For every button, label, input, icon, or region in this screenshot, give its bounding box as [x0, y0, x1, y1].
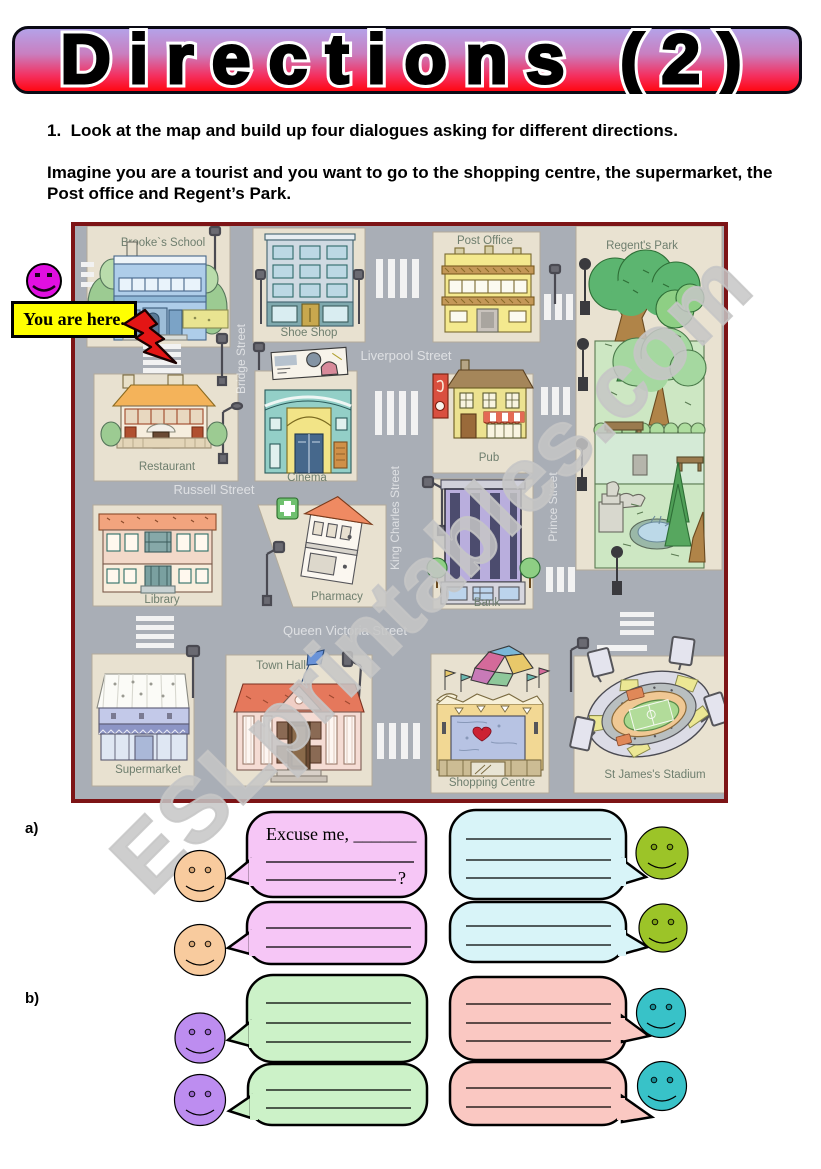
svg-text:Excuse me, _______: Excuse me, _______: [266, 824, 417, 844]
svg-text:Library: Library: [144, 594, 179, 606]
svg-text:Bridge Street: Bridge Street: [234, 323, 248, 394]
svg-text:Liverpool Street: Liverpool Street: [360, 348, 451, 363]
svg-text:Russell Street: Russell Street: [174, 482, 255, 497]
svg-text:Pub: Pub: [479, 452, 499, 464]
svg-text:Pharmacy: Pharmacy: [311, 591, 363, 603]
svg-text:Shoe Shop: Shoe Shop: [281, 327, 338, 339]
svg-text:Cinema: Cinema: [287, 472, 327, 484]
svg-text:Directions (2): Directions (2): [60, 26, 759, 94]
svg-text:Post Office: Post Office: [457, 235, 513, 247]
svg-text:King Charles Street: King Charles Street: [388, 465, 402, 570]
svg-text:St James's Stadium: St James's Stadium: [604, 769, 705, 781]
svg-text:Supermarket: Supermarket: [115, 764, 182, 776]
svg-text:Prince Street: Prince Street: [546, 472, 560, 542]
svg-text:Restaurant: Restaurant: [139, 461, 196, 473]
svg-text:Queen Victoria Street: Queen Victoria Street: [283, 623, 407, 638]
svg-text:Shopping Centre: Shopping Centre: [449, 777, 535, 789]
svg-text:Bank: Bank: [474, 597, 500, 609]
svg-text:Town Hall: Town Hall: [256, 660, 306, 672]
svg-text:?: ?: [398, 868, 406, 888]
